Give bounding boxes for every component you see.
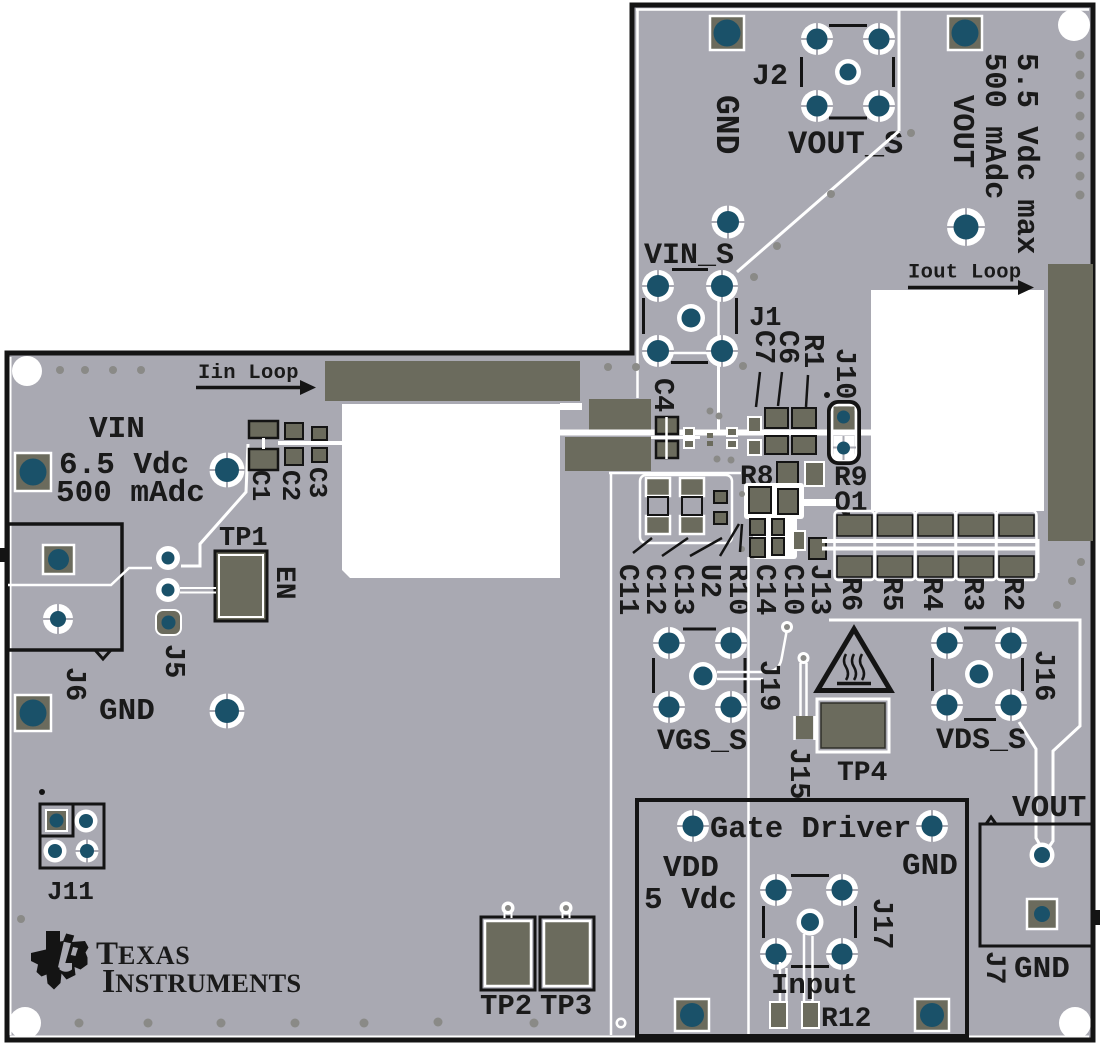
svg-text:C4: C4 <box>646 378 679 412</box>
svg-text:C2: C2 <box>275 470 305 501</box>
svg-text:R2: R2 <box>996 577 1029 611</box>
svg-text:VOUT: VOUT <box>944 95 978 168</box>
svg-text:5 Vdc: 5 Vdc <box>644 883 737 918</box>
svg-text:J2: J2 <box>752 60 788 94</box>
svg-text:500 mAdc: 500 mAdc <box>56 476 205 511</box>
svg-text:R5: R5 <box>875 577 908 611</box>
svg-text:5.5 Vdc max: 5.5 Vdc max <box>1008 53 1042 254</box>
svg-text:R4: R4 <box>915 577 948 611</box>
svg-text:J16: J16 <box>1027 650 1060 701</box>
svg-text:J19: J19 <box>752 660 785 711</box>
svg-text:R6: R6 <box>834 577 867 611</box>
svg-text:VOUT: VOUT <box>1012 791 1086 826</box>
svg-text:J6: J6 <box>58 667 91 701</box>
svg-text:VOUT_S: VOUT_S <box>788 126 903 163</box>
svg-text:R1: R1 <box>796 334 829 368</box>
svg-text:Gate Driver: Gate Driver <box>710 813 911 847</box>
svg-text:R12: R12 <box>821 1004 871 1035</box>
svg-text:GND: GND <box>707 95 744 154</box>
svg-text:GND: GND <box>99 694 155 729</box>
svg-text:C1: C1 <box>245 470 275 501</box>
svg-text:J5: J5 <box>157 644 190 678</box>
svg-text:J10: J10 <box>828 348 861 399</box>
svg-text:VIN_S: VIN_S <box>644 239 734 273</box>
svg-text:VDS_S: VDS_S <box>936 724 1026 758</box>
svg-text:J15: J15 <box>782 748 815 799</box>
svg-text:TP3: TP3 <box>540 990 592 1023</box>
svg-text:VDD: VDD <box>663 851 719 886</box>
svg-text:INSTRUMENTS: INSTRUMENTS <box>102 963 301 1000</box>
svg-text:J13: J13 <box>803 564 836 615</box>
svg-text:VGS_S: VGS_S <box>657 725 747 759</box>
svg-text:J7: J7 <box>978 951 1009 985</box>
svg-text:J11: J11 <box>47 877 94 907</box>
svg-text:GND: GND <box>1014 952 1070 987</box>
svg-text:VIN: VIN <box>89 412 145 447</box>
svg-text:Input: Input <box>771 969 858 1002</box>
svg-text:J17: J17 <box>865 898 898 949</box>
svg-text:Iout Loop: Iout Loop <box>908 262 1021 285</box>
svg-text:TP2: TP2 <box>480 990 532 1023</box>
svg-text:Iin Loop: Iin Loop <box>198 362 299 385</box>
svg-text:C3: C3 <box>302 467 332 498</box>
svg-text:500 mAdc: 500 mAdc <box>976 53 1010 199</box>
svg-text:EN: EN <box>268 566 299 600</box>
svg-text:TP4: TP4 <box>837 758 887 789</box>
svg-text:R3: R3 <box>956 577 989 611</box>
svg-text:GND: GND <box>902 849 958 884</box>
